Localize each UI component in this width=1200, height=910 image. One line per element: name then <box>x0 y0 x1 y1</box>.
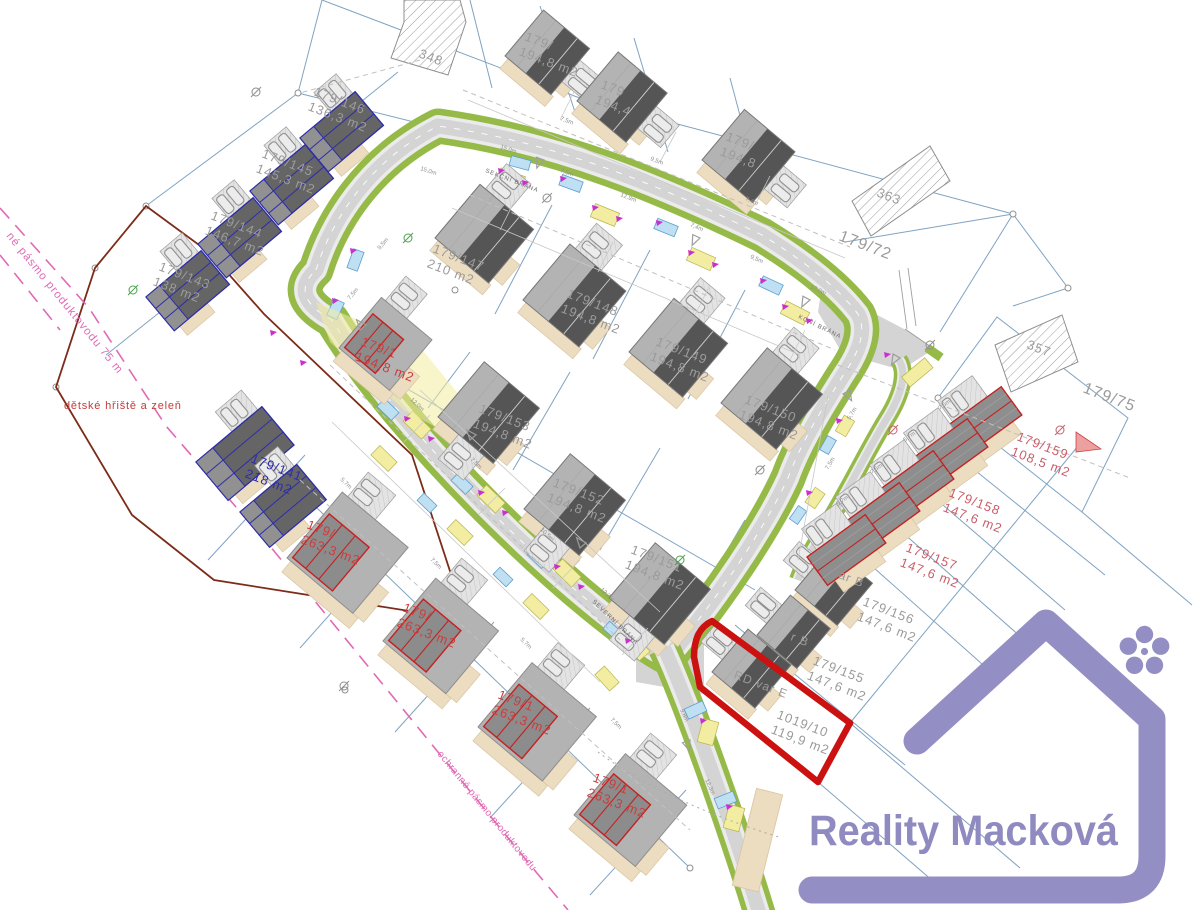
svg-text:Reality Macková: Reality Macková <box>809 807 1119 855</box>
svg-text:dětské hřiště a zeleň: dětské hřiště a zeleň <box>64 400 182 412</box>
